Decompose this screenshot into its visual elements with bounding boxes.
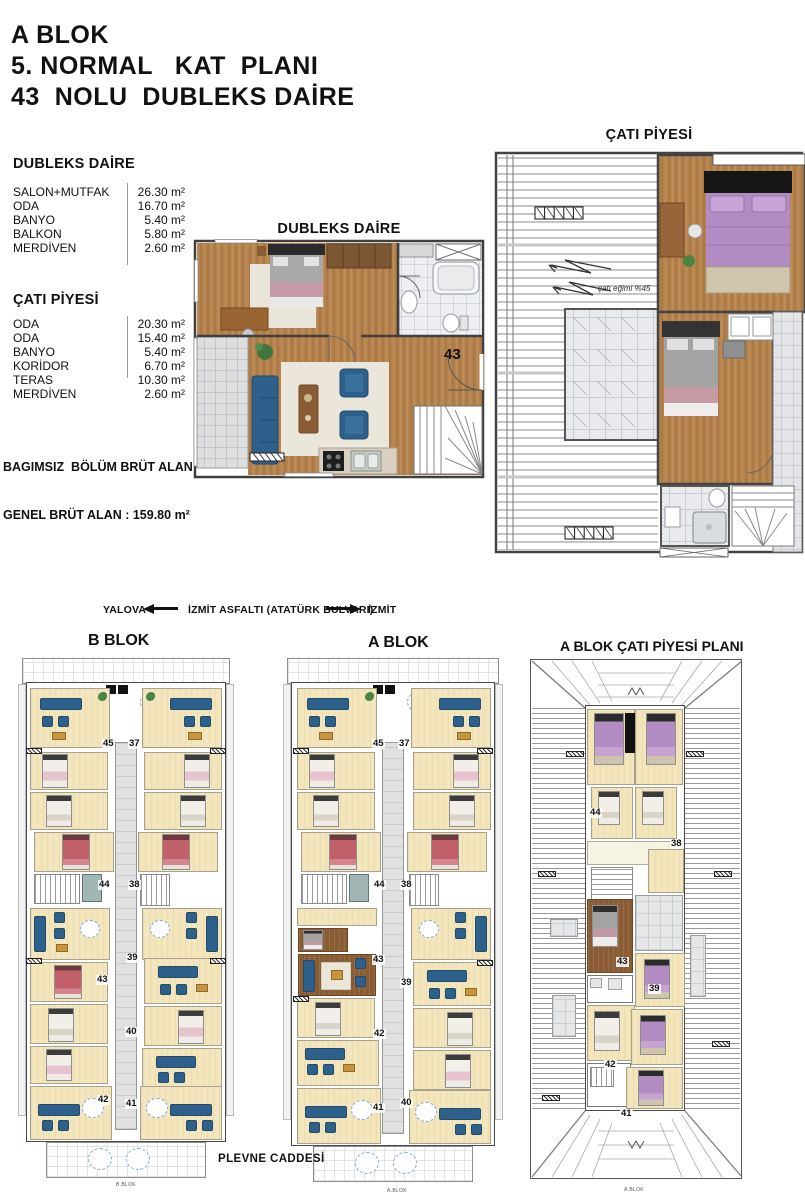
bed: [638, 1070, 664, 1106]
street-label: PLEVNE CADDESİ: [218, 1153, 325, 1165]
table-row: BALKON5.80 m²: [13, 227, 185, 241]
table-divider: [127, 183, 128, 265]
bed: [42, 754, 68, 788]
bedroom: [413, 752, 491, 790]
unit-number: 43: [372, 955, 385, 965]
bed: [594, 713, 624, 765]
b-blok-floorplan: 45 37 44 38 43 39 40 42 41 B.BLOK: [18, 658, 234, 1188]
roof-terrace-band: [22, 658, 230, 684]
armchair: [176, 984, 187, 995]
armchair: [323, 1064, 334, 1075]
unit-number: 45: [102, 739, 115, 749]
toilet: [709, 489, 725, 507]
dining-set: [415, 1102, 437, 1122]
table-row: BANYO5.40 m²: [13, 345, 185, 359]
dubleks-plan-title: DUBLEKS DAİRE: [193, 221, 485, 237]
armchair: [160, 984, 171, 995]
row-label: TERAS: [13, 373, 53, 387]
dining-set: [393, 1152, 417, 1174]
shower: [608, 978, 622, 990]
armchair: [42, 1120, 53, 1131]
row-value: 2.60 m²: [129, 387, 185, 401]
hall: [297, 908, 377, 926]
railing: [293, 748, 309, 754]
road-city-left: YALOVA: [103, 604, 146, 616]
railing: [566, 751, 584, 757]
armchair: [202, 1120, 213, 1131]
sink: [665, 507, 680, 527]
stairs: [414, 406, 482, 474]
kitchen: [319, 448, 397, 474]
bed: [178, 1010, 204, 1044]
row-label: SALON+MUTFAK: [13, 185, 109, 199]
sofa: [475, 916, 487, 952]
shaft: [660, 548, 728, 557]
armchair: [158, 1072, 169, 1083]
elevator-shaft: [118, 685, 128, 694]
unit-number: 37: [128, 739, 141, 749]
armchair: [453, 716, 464, 727]
table: [331, 970, 343, 980]
bed: [640, 1015, 666, 1055]
armchair: [200, 716, 211, 727]
sofa: [439, 1108, 481, 1120]
bed: [313, 795, 339, 827]
title-line-2: 5. NORMAL KAT PLANI: [11, 51, 354, 82]
sofa: [34, 916, 46, 952]
b-blok-label: B BLOK: [88, 632, 149, 650]
a-blok-label: A BLOK: [368, 634, 429, 652]
armchair: [186, 912, 197, 923]
sofa: [156, 1056, 196, 1068]
railing: [714, 871, 732, 877]
table: [465, 988, 477, 996]
dining-set: [355, 1152, 379, 1174]
row-label: ODA: [13, 317, 39, 331]
row-value: 10.30 m²: [129, 373, 185, 387]
unit-number: 41: [372, 1103, 385, 1113]
armchair: [355, 976, 366, 987]
unit-number: 40: [125, 1027, 138, 1037]
railing: [477, 748, 493, 754]
sofa: [427, 970, 467, 982]
unit-number: 43: [96, 975, 109, 985]
coffee-table: [299, 385, 318, 433]
row-value: 16.70 m²: [129, 199, 185, 213]
bed: [184, 754, 210, 788]
table-row: ODA16.70 m²: [13, 199, 185, 213]
row-label: MERDİVEN: [13, 387, 76, 401]
ottoman: [723, 341, 745, 358]
table: [56, 944, 68, 952]
unit-number: 40: [400, 1098, 413, 1108]
sink: [590, 978, 602, 988]
unit-number: 39: [400, 978, 413, 988]
table-row: ODA15.40 m²: [13, 331, 185, 345]
bed: [162, 834, 190, 870]
total-gross-area-line: GENEL BRÜT ALAN : 159.80 m²: [3, 507, 253, 523]
unit-number: 42: [604, 1060, 617, 1070]
side-terrace: [18, 684, 26, 1116]
row-value: 5.40 m²: [129, 213, 185, 227]
table: [188, 732, 202, 740]
dubleks-area-table: DUBLEKS DAİRE SALON+MUTFAK26.30 m² ODA16…: [13, 156, 185, 255]
wardrobe: [625, 713, 635, 753]
cati-piyesi-floorplan: 44 38 43 39 42 41 A.BLOK: [528, 653, 747, 1185]
row-label: BALKON: [13, 227, 62, 241]
table-row: SALON+MUTFAK26.30 m²: [13, 185, 185, 199]
plan-caption: B.BLOK: [116, 1182, 136, 1188]
unit-number: 37: [398, 739, 411, 749]
armchair: [325, 716, 336, 727]
roof-dormer: [550, 919, 578, 937]
dubleks-table-title: DUBLEKS DAİRE: [13, 156, 185, 172]
unit-number: 42: [97, 1095, 110, 1105]
central-corridor: [115, 742, 137, 1130]
dining-set: [150, 920, 170, 938]
road-name: İZMİT ASFALTI (ATATÜRK BULVARI): [188, 604, 373, 616]
bathroom: [661, 486, 729, 546]
roof-dormer: [690, 935, 706, 997]
arrow-line: [326, 607, 352, 610]
bed: [329, 834, 357, 870]
armchair: [325, 1122, 336, 1133]
armchair: [54, 912, 65, 923]
row-value: 5.40 m²: [129, 345, 185, 359]
armchair: [54, 928, 65, 939]
row-value: 5.80 m²: [129, 227, 185, 241]
sink: [401, 291, 417, 313]
bed: [646, 713, 676, 765]
bedroom: [197, 243, 398, 341]
sofa: [170, 1104, 212, 1116]
unit-number: 42: [373, 1029, 386, 1039]
side-terrace: [495, 684, 503, 1120]
table: [457, 732, 471, 740]
cati-table-title: ÇATI PİYESİ: [13, 292, 185, 308]
row-label: ODA: [13, 199, 39, 213]
sofa: [40, 698, 82, 710]
table: [319, 732, 333, 740]
armchair: [455, 928, 466, 939]
row-value: 2.60 m²: [129, 241, 185, 255]
bed: [46, 795, 72, 827]
bed: [46, 1049, 72, 1081]
table-row: MERDİVEN2.60 m²: [13, 241, 185, 255]
armchair: [455, 912, 466, 923]
a-blok-floorplan: 45 37 44 38 43 39 42 40 41 A.BLOK: [283, 658, 503, 1193]
table-row: KORİDOR6.70 m²: [13, 359, 185, 373]
table: [52, 732, 66, 740]
sofa: [158, 966, 198, 978]
row-value: 20.30 m²: [129, 317, 185, 331]
unit-number: 44: [373, 880, 386, 890]
cati-floorplan: [493, 141, 805, 560]
railing: [293, 996, 309, 1002]
elevator: [349, 874, 369, 902]
stairwell: [301, 874, 347, 904]
armchair: [429, 988, 440, 999]
armchair: [174, 1072, 185, 1083]
dining-set: [80, 920, 100, 938]
unit-number: 39: [648, 984, 661, 994]
unit-number: 38: [400, 880, 413, 890]
unit-number: 41: [125, 1099, 138, 1109]
armchair: [58, 716, 69, 727]
arrowhead-right: [350, 604, 361, 614]
unit-number: 38: [128, 880, 141, 890]
unit-number-43: 43: [444, 346, 461, 363]
table-row: TERAS10.30 m²: [13, 373, 185, 387]
dining-set: [88, 1148, 112, 1170]
railing: [686, 751, 704, 757]
sofa: [305, 1048, 345, 1060]
bed: [303, 930, 323, 950]
armchair: [58, 1120, 69, 1131]
bedroom: [144, 752, 222, 790]
row-value: 15.40 m²: [129, 331, 185, 345]
living-room: [413, 962, 491, 1006]
railing: [26, 958, 42, 964]
balcony: [194, 336, 248, 468]
armchair: [471, 1124, 482, 1135]
bed: [453, 754, 479, 788]
railing: [542, 1095, 560, 1101]
cati-plani-label: A BLOK ÇATI PİYESİ PLANI: [560, 638, 744, 654]
row-label: ODA: [13, 331, 39, 345]
sofa: [439, 698, 481, 710]
bathroom: [398, 243, 482, 336]
unit-number: 43: [616, 957, 629, 967]
roof-terrace-band: [287, 658, 499, 684]
table-row: MERDİVEN2.60 m²: [13, 387, 185, 401]
railing: [712, 1041, 730, 1047]
dining-set: [146, 1098, 168, 1118]
unit-number: 38: [670, 839, 683, 849]
bed: [594, 1011, 620, 1051]
table: [196, 984, 208, 992]
table-row: BANYO5.40 m²: [13, 213, 185, 227]
railing: [210, 748, 226, 754]
roof-slope-note: çatı eğimi %45: [598, 284, 650, 293]
bed: [642, 791, 664, 825]
plan-caption: A.BLOK: [624, 1187, 644, 1193]
railing: [210, 958, 226, 964]
armchair: [307, 1064, 318, 1075]
dining-set: [351, 1100, 373, 1120]
living-room: [144, 958, 222, 1004]
stairwell: [590, 1067, 614, 1087]
road-city-right: İZMİT: [368, 604, 396, 616]
side-terrace: [226, 684, 234, 1116]
row-label: BANYO: [13, 213, 55, 227]
dining-set: [126, 1148, 150, 1170]
elevator-shaft: [385, 685, 395, 694]
bed: [449, 795, 475, 827]
side-terrace: [283, 684, 291, 1120]
sofa: [170, 698, 212, 710]
stairwell: [140, 874, 170, 906]
dining-set: [419, 920, 439, 938]
unit-number: 44: [98, 880, 111, 890]
sofa: [38, 1104, 80, 1116]
bed: [445, 1054, 471, 1088]
armchair: [355, 958, 366, 969]
armchair: [42, 716, 53, 727]
sofa: [305, 1106, 347, 1118]
railing: [538, 871, 556, 877]
unit-number: 44: [589, 808, 602, 818]
railing: [477, 960, 493, 966]
bed: [431, 834, 459, 870]
bed: [180, 795, 206, 827]
stairwell: [34, 874, 80, 904]
table-divider: [127, 316, 128, 378]
bed: [62, 834, 90, 870]
row-label: MERDİVEN: [13, 241, 76, 255]
bed: [592, 905, 618, 947]
bed: [309, 754, 335, 788]
armchair: [469, 716, 480, 727]
stairs: [732, 486, 794, 546]
stove: [323, 451, 344, 471]
stairwell: [409, 874, 439, 906]
armchair: [309, 1122, 320, 1133]
bed: [315, 1002, 341, 1036]
sofa: [206, 916, 218, 952]
bed: [447, 1012, 473, 1046]
armchair: [309, 716, 320, 727]
toilet: [443, 314, 459, 332]
sofa: [303, 960, 315, 992]
plant: [683, 255, 695, 267]
armchair: [186, 928, 197, 939]
bed: [48, 1008, 74, 1042]
railing: [26, 748, 42, 754]
terrace: [635, 895, 683, 951]
plan-caption: A.BLOK: [387, 1188, 407, 1194]
unit-number: 45: [372, 739, 385, 749]
page-title: A BLOK 5. NORMAL KAT PLANI 43 NOLU DUBLE…: [11, 20, 354, 113]
title-line-3: 43 NOLU DUBLEKS DAİRE: [11, 82, 354, 113]
armchair: [186, 1120, 197, 1131]
sofa: [307, 698, 349, 710]
bed: [54, 965, 82, 999]
cati-area-table: ÇATI PİYESİ ODA20.30 m² ODA15.40 m² BANY…: [13, 292, 185, 401]
room: [648, 849, 684, 893]
unit-number: 39: [126, 953, 139, 963]
armchair: [184, 716, 195, 727]
living-room: [297, 1040, 379, 1086]
row-label: KORİDOR: [13, 359, 69, 373]
unit-number: 41: [620, 1109, 633, 1119]
desk: [660, 203, 684, 257]
armchair: [455, 1124, 466, 1135]
upper-bedroom: [658, 154, 805, 312]
row-value: 6.70 m²: [129, 359, 185, 373]
arrow-line: [152, 607, 178, 610]
lower-bedroom: [658, 312, 774, 484]
row-label: BANYO: [13, 345, 55, 359]
radiator: [250, 453, 284, 461]
roof-dormer: [552, 995, 576, 1037]
table: [343, 1064, 355, 1072]
armchair: [445, 988, 456, 999]
dubleks-floorplan: [193, 238, 485, 480]
central-corridor: [382, 742, 404, 1134]
title-line-1: A BLOK: [11, 20, 354, 51]
row-value: 26.30 m²: [129, 185, 185, 199]
table-row: ODA20.30 m²: [13, 317, 185, 331]
